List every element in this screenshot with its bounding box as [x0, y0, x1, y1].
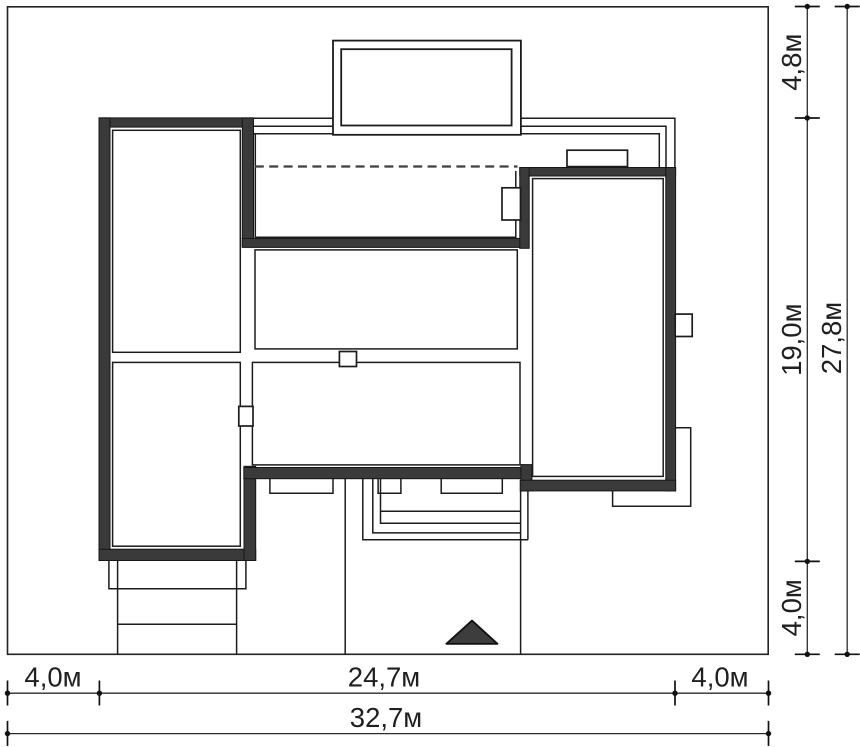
svg-text:19,0м: 19,0м	[776, 303, 807, 375]
svg-text:4,0м: 4,0м	[776, 579, 807, 636]
svg-text:32,7м: 32,7м	[350, 702, 422, 733]
svg-text:4,8м: 4,8м	[776, 34, 807, 91]
svg-text:4,0м: 4,0м	[691, 662, 748, 693]
svg-text:4,0м: 4,0м	[24, 662, 81, 693]
svg-text:27,8м: 27,8м	[816, 302, 847, 374]
svg-text:24,7м: 24,7м	[348, 662, 420, 693]
